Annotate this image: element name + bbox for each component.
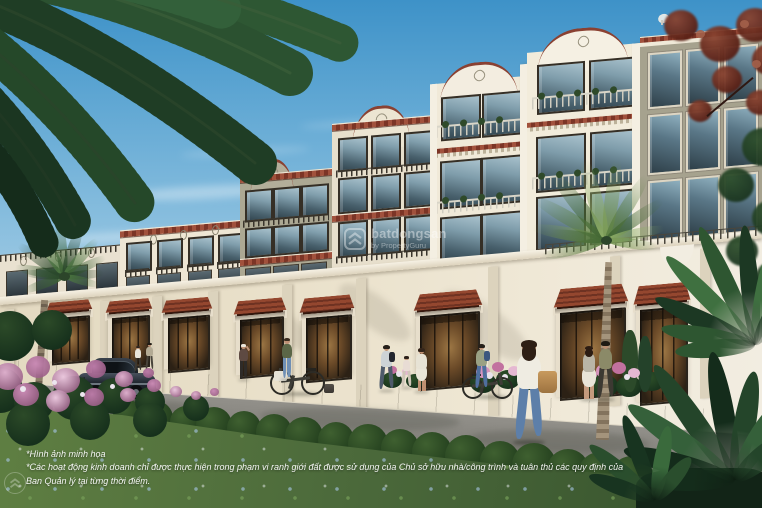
- watermark-text: batdongsan by PropertyGuru: [371, 227, 447, 250]
- satellite-dish-mast: [661, 20, 663, 25]
- person-figure: [144, 343, 155, 371]
- red-tree-highlight: [740, 20, 749, 28]
- flowerbed-foliage: [133, 403, 167, 437]
- hydrangea-white: [52, 380, 57, 385]
- hydrangea-pink: [13, 383, 39, 406]
- person-torso: [599, 349, 613, 369]
- person-figure: [597, 341, 614, 400]
- palm-crown-core: [59, 272, 70, 281]
- person-leg: [482, 365, 488, 387]
- watermark-byline: by PropertyGuru: [371, 242, 447, 250]
- hydrangea-pink: [26, 356, 50, 378]
- red-tree-highlight: [752, 60, 761, 68]
- disclaimer-line-1: *Hình ảnh minh họa: [26, 448, 623, 461]
- person-backpack: [484, 351, 490, 361]
- person-figure: [237, 344, 250, 380]
- bicycle: [270, 364, 325, 395]
- window: [648, 112, 682, 175]
- hydrangea-white: [20, 386, 26, 392]
- person-leg: [244, 361, 247, 378]
- tall-shrub: [622, 330, 638, 392]
- person-leg: [418, 380, 422, 391]
- person-figure: [414, 348, 429, 392]
- person-shadow: [379, 390, 394, 392]
- flowerbed-foliage: [6, 402, 50, 446]
- green-tree-foliage: [718, 168, 754, 202]
- bike-seat: [306, 368, 316, 371]
- person-torso: [135, 349, 141, 358]
- person-leg: [388, 366, 394, 388]
- person-leg: [401, 371, 405, 387]
- person-figure: [133, 346, 143, 371]
- person-backpack: [389, 352, 395, 362]
- person-leg: [607, 368, 614, 397]
- window: [371, 173, 401, 212]
- person-figure: [474, 344, 489, 390]
- person-leg: [134, 357, 137, 370]
- person-hair-long: [522, 345, 536, 360]
- person-shadow: [280, 379, 293, 381]
- hydrangea-pink: [46, 390, 70, 412]
- person-torso: [239, 349, 247, 361]
- hydrangea-white: [80, 392, 85, 397]
- person-hair: [404, 356, 409, 359]
- watermark-batdongsan: batdongsan by PropertyGuru: [344, 227, 447, 250]
- red-tree-highlight: [696, 30, 705, 38]
- shopfront-mullions: [168, 315, 206, 369]
- hydrangea-pink: [210, 388, 219, 396]
- hydrangea-pink: [115, 371, 133, 387]
- person-shadow: [238, 379, 250, 381]
- person-hair: [241, 344, 246, 347]
- red-tree-foliage: [688, 100, 712, 122]
- window: [648, 50, 682, 109]
- hydrangea-pink: [147, 379, 161, 392]
- person-hair: [478, 344, 485, 348]
- person-leg: [139, 357, 142, 369]
- hydrangea-pink: [143, 368, 154, 378]
- person-hair: [284, 338, 290, 342]
- hydrangea-pink: [191, 391, 201, 400]
- person-leg: [475, 365, 481, 388]
- hydrangea-white: [110, 384, 115, 389]
- person-leg: [514, 387, 528, 439]
- person-handbag: [538, 371, 557, 393]
- flowerbed-foliage: [70, 400, 110, 440]
- person-torso: [416, 354, 426, 369]
- hydrangea-pink: [86, 360, 106, 378]
- person-shadow: [474, 389, 489, 391]
- person-leg: [596, 368, 604, 398]
- bike-wheel: [301, 371, 325, 395]
- person-hair: [418, 348, 425, 352]
- person-figure: [581, 346, 597, 400]
- person-hair: [136, 346, 140, 348]
- person-hair-long: [585, 349, 593, 357]
- person-leg: [379, 366, 385, 389]
- person-leg: [150, 356, 154, 370]
- red-tree-foliage: [664, 10, 698, 41]
- person-hair: [147, 343, 151, 345]
- person-figure: [379, 345, 394, 391]
- flower-cluster-white: [624, 374, 630, 380]
- person-leg: [287, 357, 291, 377]
- window: [371, 133, 401, 170]
- person-figure: [401, 356, 412, 388]
- hydrangea-pink: [84, 388, 104, 406]
- person-leg: [240, 361, 243, 379]
- red-tree-foliage: [700, 26, 740, 62]
- person-figure: [280, 338, 294, 380]
- person-torso: [282, 344, 292, 358]
- batdongsan-logo-icon: [344, 228, 366, 250]
- palm-crown-core: [601, 236, 612, 245]
- person-leg: [283, 357, 287, 378]
- person-torso: [146, 347, 152, 357]
- hydrangea-pink: [120, 388, 136, 402]
- flower-cluster-pink: [612, 362, 626, 374]
- person-hair: [601, 341, 610, 346]
- disclaimer-line-3: Ban Quản lý tại từng thời điểm.: [26, 475, 623, 488]
- palm-foliage-topleft: [0, 0, 370, 268]
- person-leg: [530, 387, 543, 437]
- person-torso: [403, 360, 410, 371]
- corner-watermark-logo-icon: [4, 472, 26, 494]
- disclaimer: *Hình ảnh minh họa *Các hoạt động kinh d…: [26, 448, 623, 488]
- person-leg: [407, 371, 411, 387]
- person-hair: [383, 345, 390, 349]
- person-leg: [422, 380, 426, 391]
- tall-shrub: [638, 336, 652, 392]
- architectural-render-scene: batdongsan by PropertyGuru *Hình ảnh min…: [0, 0, 762, 508]
- flowerbed-foliage: [32, 310, 72, 350]
- watermark-brand: batdongsan: [371, 227, 447, 240]
- disclaimer-line-2: *Các hoạt động kinh doanh chỉ được thực …: [26, 461, 623, 474]
- person-figure: [516, 340, 542, 443]
- person-shadow: [401, 387, 411, 389]
- hydrangea-pink: [170, 386, 182, 397]
- stone-bollard: [324, 384, 334, 393]
